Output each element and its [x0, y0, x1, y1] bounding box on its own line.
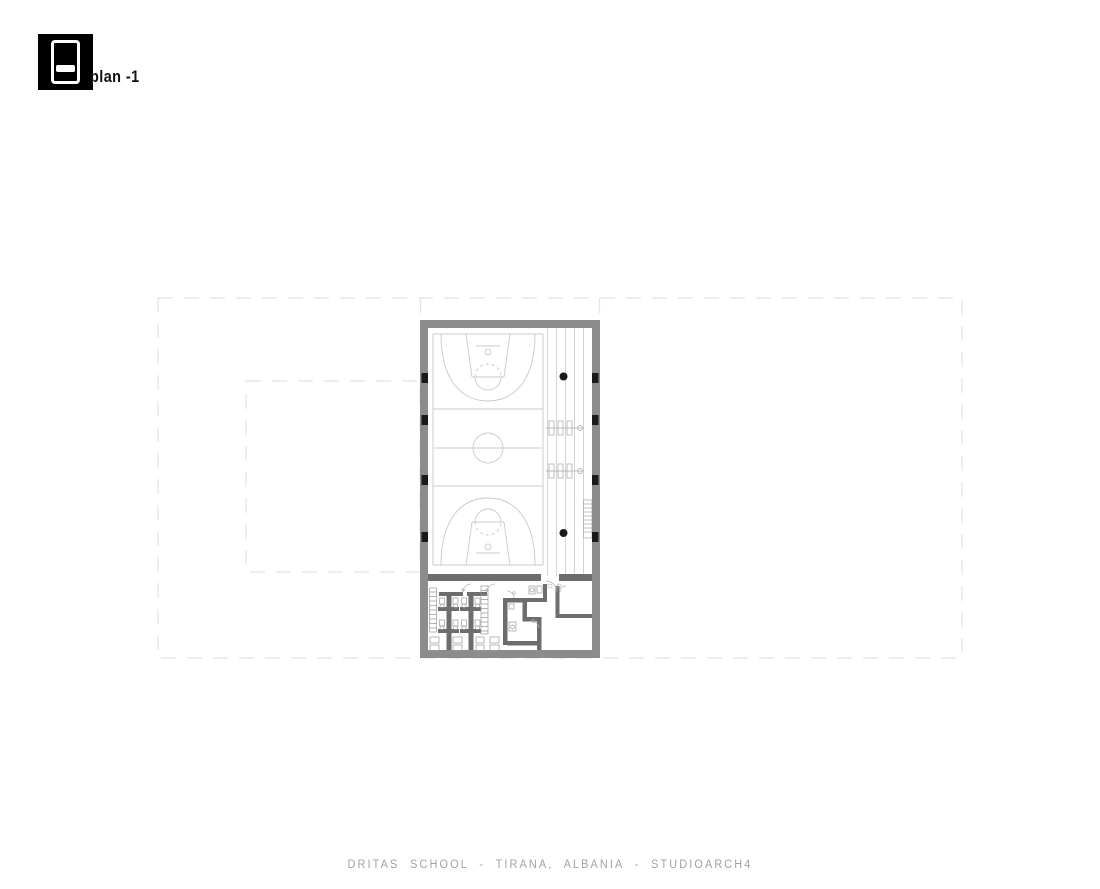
basement-floor-plan [150, 290, 970, 670]
sheet-title: plan -1 [90, 67, 140, 87]
partition-walls [428, 574, 592, 650]
round-columns [560, 373, 568, 538]
rim [485, 349, 491, 355]
basketball-court-markings [433, 334, 543, 565]
bleacher-rows [548, 328, 584, 576]
project-caption: DRITAS SCHOOL - TIRANA, ALBANIA - STUDIO… [28, 859, 1073, 871]
staircase [584, 500, 593, 538]
three-point-arc-top [441, 334, 535, 401]
highlighted-level-band [56, 65, 75, 72]
free-throw-circle-dashed [475, 364, 501, 377]
level-stack-glyph [51, 40, 80, 84]
three-point-arc-bottom [441, 498, 535, 565]
structural-columns [422, 373, 599, 542]
floor-level-indicator-icon [38, 34, 93, 90]
